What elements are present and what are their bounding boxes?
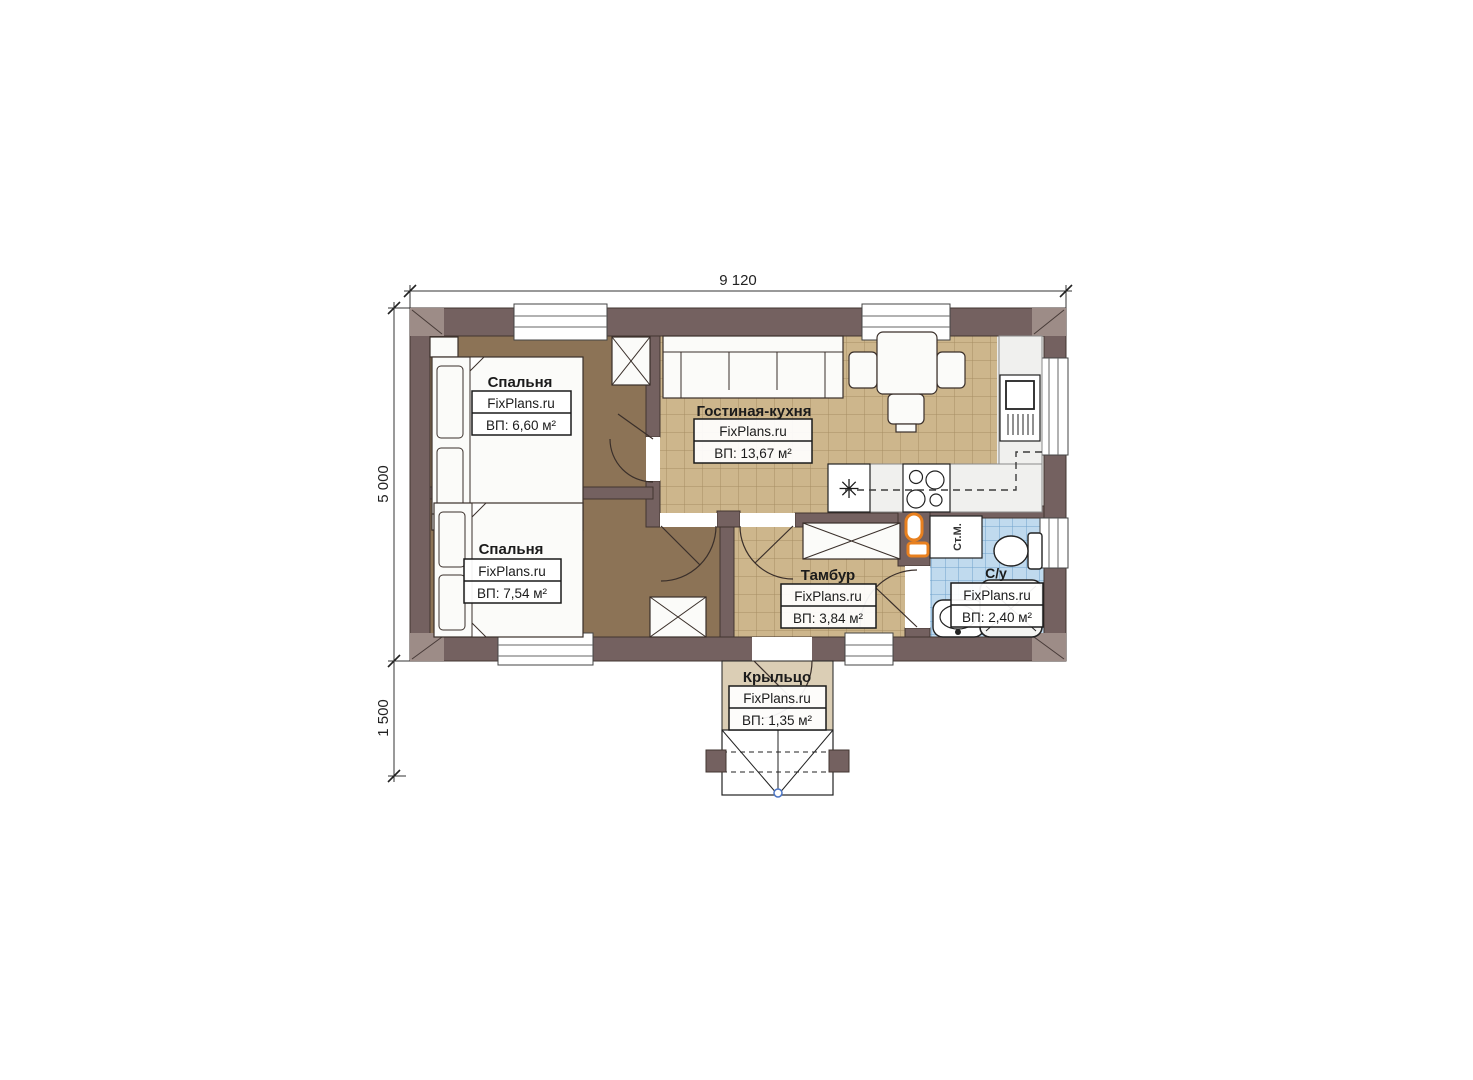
dimension-left-porch: 1 500 [375, 661, 406, 782]
area-label: ВП: 13,67 м² [714, 446, 792, 461]
wall-left [410, 308, 430, 661]
floor-plan-drawing: ✳ Ст.М. [0, 0, 1473, 1080]
area-label: ВП: 3,84 м² [793, 611, 864, 626]
brand-label: FixPlans.ru [743, 691, 811, 706]
label-living-kitchen: Гостиная-кухня FixPlans.ru ВП: 13,67 м² [694, 403, 812, 463]
window-kitchen-right [1040, 358, 1068, 455]
sofa [663, 336, 843, 398]
brand-label: FixPlans.ru [963, 588, 1031, 603]
room-title: Спальня [488, 374, 553, 391]
area-label: ВП: 6,60 м² [486, 418, 557, 433]
dimension-width-label: 9 120 [719, 272, 757, 289]
brand-label: FixPlans.ru [719, 424, 787, 439]
bedroom2-door-opening [660, 513, 717, 527]
porch-post-left [706, 750, 726, 772]
chair-bottom [888, 394, 924, 424]
fridge-icon: ✳ [838, 474, 860, 504]
table-top [877, 332, 937, 394]
vestibule-closet [803, 523, 900, 559]
wall-bedroom2-vestibule [720, 527, 734, 637]
bedroom1-door-opening [646, 437, 660, 481]
brand-label: FixPlans.ru [478, 564, 546, 579]
wall-top [410, 308, 1066, 336]
room-title: Тамбур [801, 567, 855, 584]
area-label: ВП: 7,54 м² [477, 586, 548, 601]
porch-survey-point [774, 789, 782, 797]
room-title: Крыльцо [743, 669, 811, 686]
dimension-left-house: 5 000 [375, 302, 410, 667]
window-bathroom-right [1040, 518, 1068, 568]
fridge: ✳ [828, 464, 870, 512]
area-label: ВП: 1,35 м² [742, 713, 813, 728]
wall-chunk-center [717, 511, 740, 527]
porch-steps [722, 730, 833, 797]
washing-machine-label: Ст.М. [952, 523, 964, 551]
floor-plan-page: ✳ Ст.М. [0, 0, 1473, 1080]
brand-label: FixPlans.ru [794, 589, 862, 604]
room-title: С/у [985, 565, 1007, 581]
room-title: Спальня [479, 541, 544, 558]
kitchen-sink [1000, 375, 1040, 441]
chair-right [937, 352, 965, 388]
dimension-top: 9 120 [404, 272, 1072, 308]
wall-bathroom-stub [905, 628, 930, 637]
window-bedroom2-bottom [498, 633, 593, 665]
toilet [994, 533, 1042, 569]
chair-bottom-seat [896, 424, 916, 432]
stove [903, 464, 950, 512]
boiler-unit-icon [908, 543, 928, 556]
porch-post-right [829, 750, 849, 772]
room-title: Гостиная-кухня [697, 403, 812, 420]
window-vestibule-bottom [845, 633, 893, 665]
window-bedroom1-top [514, 304, 607, 340]
dimension-height-label: 5 000 [375, 465, 392, 503]
dimension-porch-label: 1 500 [375, 699, 392, 737]
chair-left [849, 352, 877, 388]
vestibule-door-opening [740, 513, 795, 527]
washing-machine: Ст.М. [930, 516, 982, 558]
boiler-icon [906, 514, 922, 540]
wardrobe-bedroom1 [612, 337, 650, 385]
area-label: ВП: 2,40 м² [962, 610, 1033, 625]
nightstand [430, 337, 458, 357]
wardrobe-bedroom2 [650, 597, 706, 637]
brand-label: FixPlans.ru [487, 396, 555, 411]
entry-door-opening [752, 637, 812, 661]
